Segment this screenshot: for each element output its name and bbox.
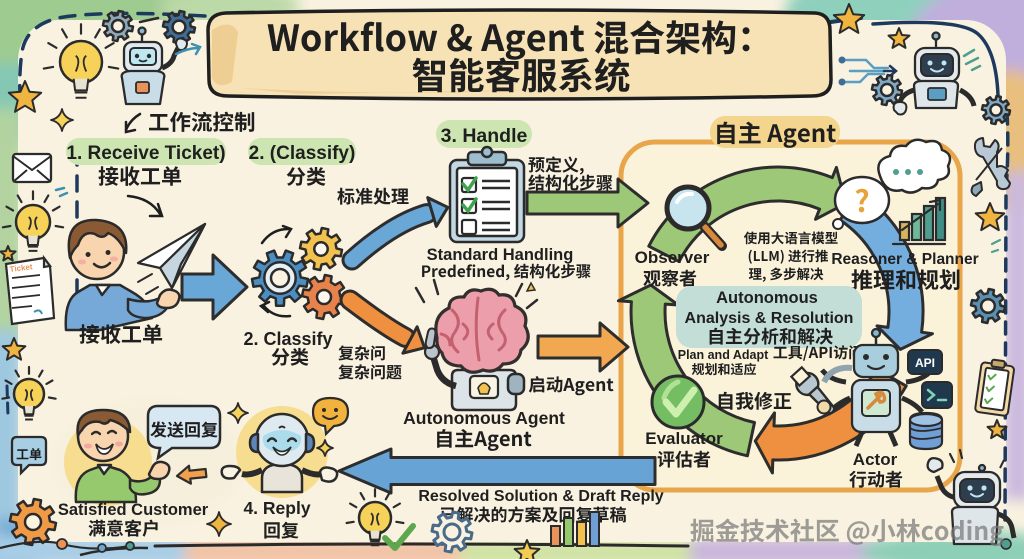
svg-text:4. Reply: 4. Reply	[243, 498, 310, 518]
svg-text:Standard Handling: Standard Handling	[427, 246, 574, 264]
svg-text:Reasoner & Planner: Reasoner & Planner	[831, 251, 978, 268]
svg-text:API: API	[915, 356, 935, 370]
svg-text:Satisfied Customer: Satisfied Customer	[58, 501, 209, 519]
svg-text:Plan and Adapt: Plan and Adapt	[678, 348, 769, 362]
svg-text:2. Classify: 2. Classify	[243, 329, 332, 349]
svg-text:2. (Classify): 2. (Classify)	[249, 143, 356, 164]
svg-text:Autonomous: Autonomous	[716, 289, 818, 307]
svg-text:Actor: Actor	[853, 450, 898, 469]
svg-text:Autonomous Agent: Autonomous Agent	[403, 408, 565, 428]
svg-text:Evaluator: Evaluator	[645, 429, 723, 448]
svg-text:1. Receive Ticket): 1. Receive Ticket)	[66, 143, 225, 164]
svg-text:Analysis & Resolution: Analysis & Resolution	[685, 310, 854, 327]
svg-text:3. Handle: 3. Handle	[441, 125, 528, 147]
svg-text:Observer: Observer	[635, 248, 710, 267]
svg-text:Resolved Solution & Draft Repl: Resolved Solution & Draft Reply	[418, 488, 663, 505]
